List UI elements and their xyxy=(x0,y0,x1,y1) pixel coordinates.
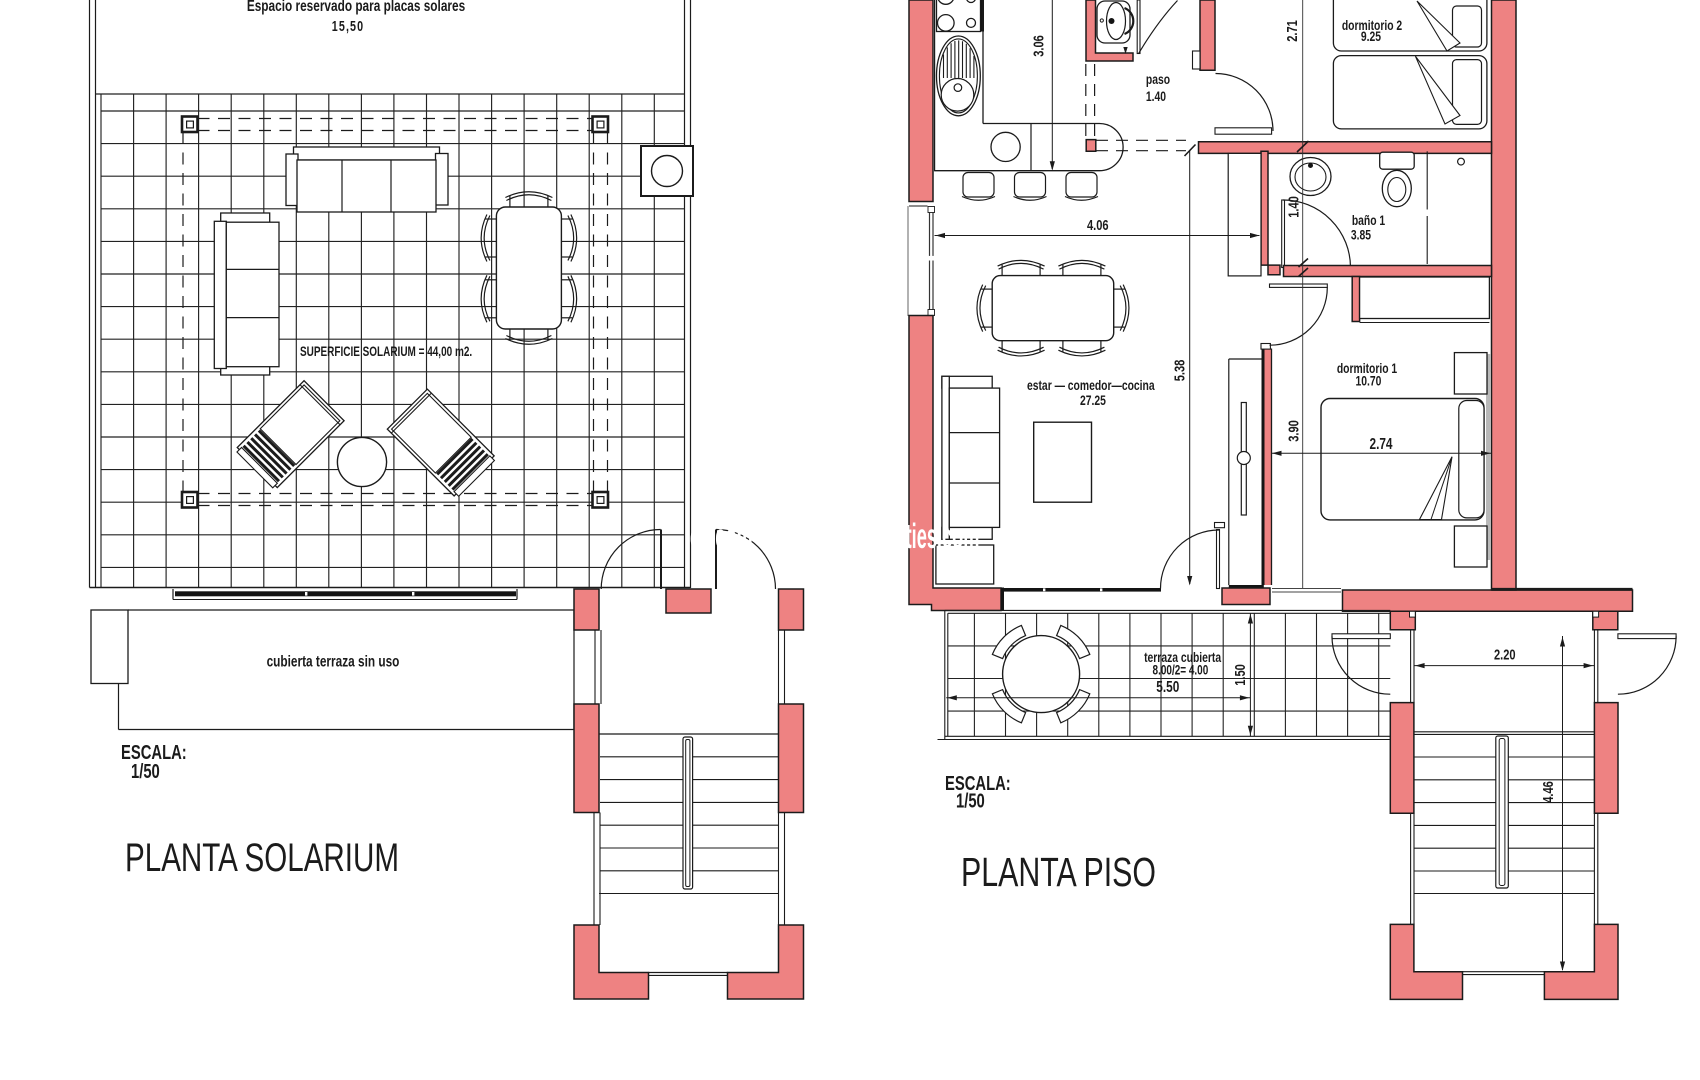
svg-text:3.06: 3.06 xyxy=(1030,35,1047,57)
svg-text:5.38: 5.38 xyxy=(1171,360,1188,382)
svg-text:PLANTA PISO: PLANTA PISO xyxy=(961,848,1156,895)
svg-text:8.00/2= 4.00: 8.00/2= 4.00 xyxy=(1153,662,1209,678)
svg-text:27.25: 27.25 xyxy=(1080,392,1106,408)
svg-text:2.71: 2.71 xyxy=(1283,20,1300,42)
svg-text:PLANTA SOLARIUM: PLANTA SOLARIUM xyxy=(125,836,399,880)
svg-text:10.70: 10.70 xyxy=(1356,373,1382,389)
svg-text:3.85: 3.85 xyxy=(1351,227,1371,243)
svg-text:5.50: 5.50 xyxy=(1156,677,1179,695)
svg-text:cubierta terraza sin uso: cubierta terraza sin uso xyxy=(267,652,400,670)
svg-text:paso: paso xyxy=(1146,71,1171,87)
svg-text:2.20: 2.20 xyxy=(1494,646,1516,663)
svg-text:SUPERFICIE SOLARIUM = 44,00: SUPERFICIE SOLARIUM = 44,00 m2. xyxy=(300,343,472,359)
svg-text:estar — comedor—cocina: estar — comedor—cocina xyxy=(1027,377,1155,393)
svg-text:1/50: 1/50 xyxy=(131,760,160,783)
svg-text:Espacio reservado para plac: Espacio reservado para placas solares xyxy=(247,0,465,14)
svg-text:9.25: 9.25 xyxy=(1361,28,1381,44)
svg-text:properties.com: properties.com xyxy=(848,517,979,556)
svg-text:es.com: es.com xyxy=(690,517,753,556)
svg-text:1.40: 1.40 xyxy=(1146,88,1166,104)
svg-text:4.06: 4.06 xyxy=(1087,216,1109,233)
svg-text:4.46: 4.46 xyxy=(1539,781,1556,803)
svg-text:15,50: 15,50 xyxy=(332,17,364,34)
svg-text:1/50: 1/50 xyxy=(956,789,985,812)
svg-text:2.74: 2.74 xyxy=(1369,434,1392,452)
svg-text:1.40: 1.40 xyxy=(1285,196,1302,218)
svg-text:1.50: 1.50 xyxy=(1231,664,1248,686)
svg-text:3.90: 3.90 xyxy=(1285,420,1302,442)
